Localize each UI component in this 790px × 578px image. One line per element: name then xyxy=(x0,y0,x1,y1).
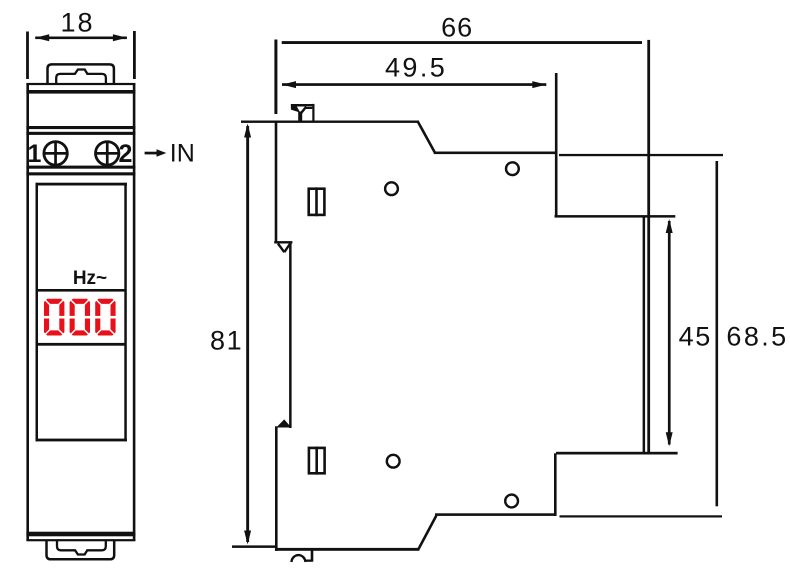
svg-text:68.5: 68.5 xyxy=(726,321,788,351)
svg-text:1: 1 xyxy=(27,140,41,168)
svg-text:66: 66 xyxy=(441,12,473,42)
svg-text:IN: IN xyxy=(170,140,195,168)
svg-text:81: 81 xyxy=(210,325,243,355)
svg-text:2: 2 xyxy=(119,140,133,168)
svg-text:18: 18 xyxy=(60,8,94,38)
svg-text:45: 45 xyxy=(679,321,712,351)
svg-text:49.5: 49.5 xyxy=(385,53,447,83)
svg-text:Hz~: Hz~ xyxy=(73,268,107,289)
